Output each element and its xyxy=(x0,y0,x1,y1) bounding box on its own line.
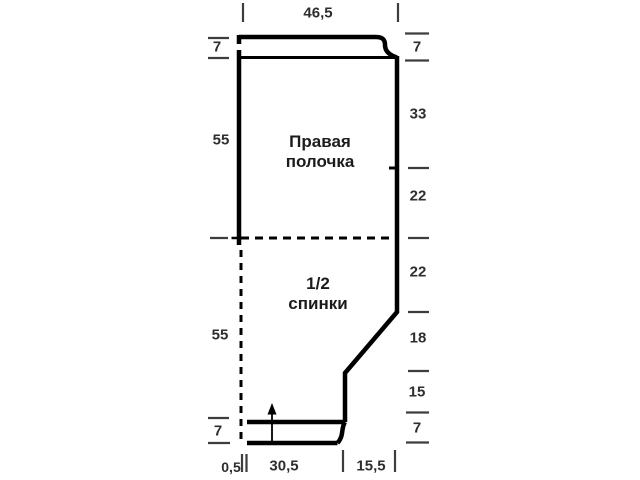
shape-top-edge xyxy=(239,37,397,58)
measure-bottom-305: 30,5 xyxy=(269,458,298,475)
bottom-double-tick xyxy=(242,454,247,472)
measure-right-18: 18 xyxy=(410,330,427,347)
measure-top-width: 46,5 xyxy=(303,5,332,22)
measure-bottom-05: 0,5 xyxy=(221,459,240,475)
band-right-curve xyxy=(338,422,346,443)
measure-bottom-155: 15,5 xyxy=(356,458,385,475)
measure-left-55-bottom: 55 xyxy=(212,327,229,344)
piece-label-right-front-line2: полочка xyxy=(286,152,355,172)
measure-right-33: 33 xyxy=(410,106,427,123)
piece-label-right-front-line1: Правая xyxy=(286,132,355,152)
measure-right-22-a: 22 xyxy=(410,188,427,205)
measure-right-15: 15 xyxy=(409,384,426,401)
measure-right-22-b: 22 xyxy=(410,264,427,281)
piece-label-half-back-line1: 1/2 xyxy=(288,274,347,294)
piece-label-right-front: Правая полочка xyxy=(286,132,355,172)
piece-label-half-back: 1/2 спинки xyxy=(288,274,347,314)
measure-left-55-top: 55 xyxy=(213,132,230,149)
measure-right-7-top: 7 xyxy=(413,39,421,56)
pattern-linework xyxy=(0,0,640,480)
measure-left-7-bottom: 7 xyxy=(214,423,222,440)
pattern-diagram-canvas: 46,5 7 55 55 7 7 33 22 22 18 15 7 0,5 30… xyxy=(0,0,640,480)
piece-label-half-back-line2: спинки xyxy=(288,294,347,314)
measure-right-7-bottom: 7 xyxy=(413,420,421,437)
measure-left-7-top: 7 xyxy=(213,39,221,56)
